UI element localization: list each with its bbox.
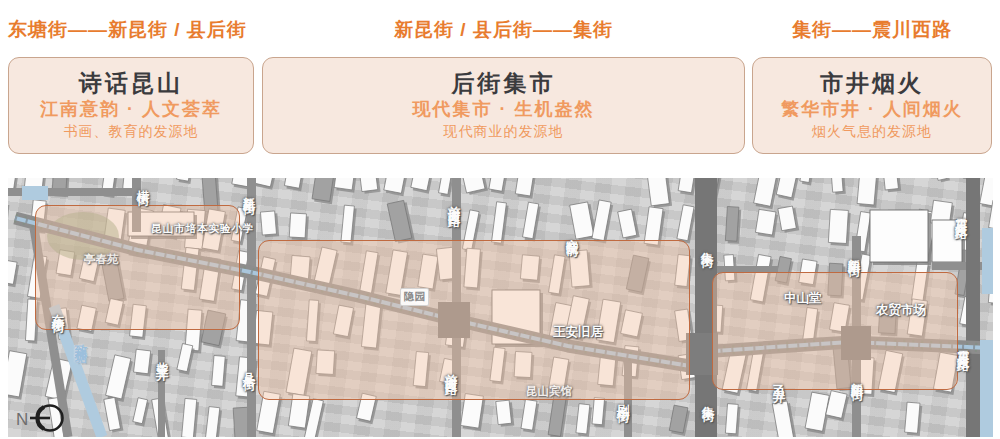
card-subtitle: 繁华市井 · 人间烟火 [753, 97, 991, 122]
card-title: 市井烟火 [753, 69, 991, 97]
poster-page: 东塘街——新昆街 / 县后街 新昆街 / 县后街——集街 集街——震川西路 诗话… [0, 0, 1000, 439]
svg-text:N: N [16, 410, 28, 429]
street-label: 新昆街 [240, 186, 257, 195]
card-description: 书画、教育的发源地 [9, 122, 253, 141]
street-label: 集街 [699, 396, 716, 402]
street-label: 前进西路 [442, 364, 459, 376]
theme-card-houjie-market: 后街集市 现代集市 · 生机盎然 现代商业的发源地 [262, 57, 745, 154]
poi-label: 王安旧居 [553, 324, 603, 341]
school-label: 昆山市培本实验小学 [151, 222, 255, 236]
street-label: 新阳街 [848, 372, 865, 381]
card-subtitle: 现代集市 · 生机盎然 [263, 97, 744, 122]
poi-label: 昆山宾馆 [526, 384, 572, 399]
highlight-zone-3 [712, 272, 958, 390]
card-description: 现代商业的发源地 [263, 122, 744, 141]
range-header-3: 集街——震川西路 [752, 17, 992, 43]
street-label: 东塘街 [49, 304, 66, 313]
poi-label: 隐园 [400, 288, 429, 306]
street-map: 横街新昆街昆山市培本实验小学亭春苑东塘街致和塘柴王弄县后街前进西路隐园前进西路察… [8, 178, 993, 437]
poi-label: 亭春苑 [84, 252, 119, 267]
street-label: 县后街 [240, 362, 257, 371]
card-title: 后街集市 [263, 69, 744, 97]
waterway-label: 致和塘 [72, 334, 89, 343]
street-label: 横街 [134, 180, 151, 186]
card-description: 烟火气息的发源地 [753, 122, 991, 141]
street-label: 柴王弄 [153, 352, 170, 361]
theme-card-shijing-yanhuo: 市井烟火 繁华市井 · 人间烟火 烟火气息的发源地 [752, 57, 992, 154]
theme-card-shihua-kunshan: 诗话昆山 江南意韵 · 人文荟萃 书画、教育的发源地 [8, 57, 254, 154]
street-label: 前进西路 [445, 196, 462, 208]
card-title: 诗话昆山 [9, 69, 253, 97]
poi-label: 农贸市场 [876, 302, 926, 319]
street-label: 震川东路 [952, 208, 969, 220]
street-label: 新阳街 [845, 248, 862, 257]
range-header-1: 东塘街——新昆街 / 县后街 [8, 17, 247, 43]
card-subtitle: 江南意韵 · 人文荟萃 [9, 97, 253, 122]
street-label: 剧场街 [614, 394, 631, 403]
street-label: 集街 [698, 242, 715, 248]
highlight-zone-2 [258, 240, 690, 400]
range-header-2: 新昆街 / 县后街——集街 [262, 17, 745, 43]
street-label: 察院前 [563, 228, 580, 237]
north-compass-icon: N [10, 394, 80, 437]
street-label: 震川东路 [954, 340, 971, 352]
street-label: 乙丑弄 [770, 374, 787, 383]
poi-label: 中山堂 [784, 290, 822, 307]
